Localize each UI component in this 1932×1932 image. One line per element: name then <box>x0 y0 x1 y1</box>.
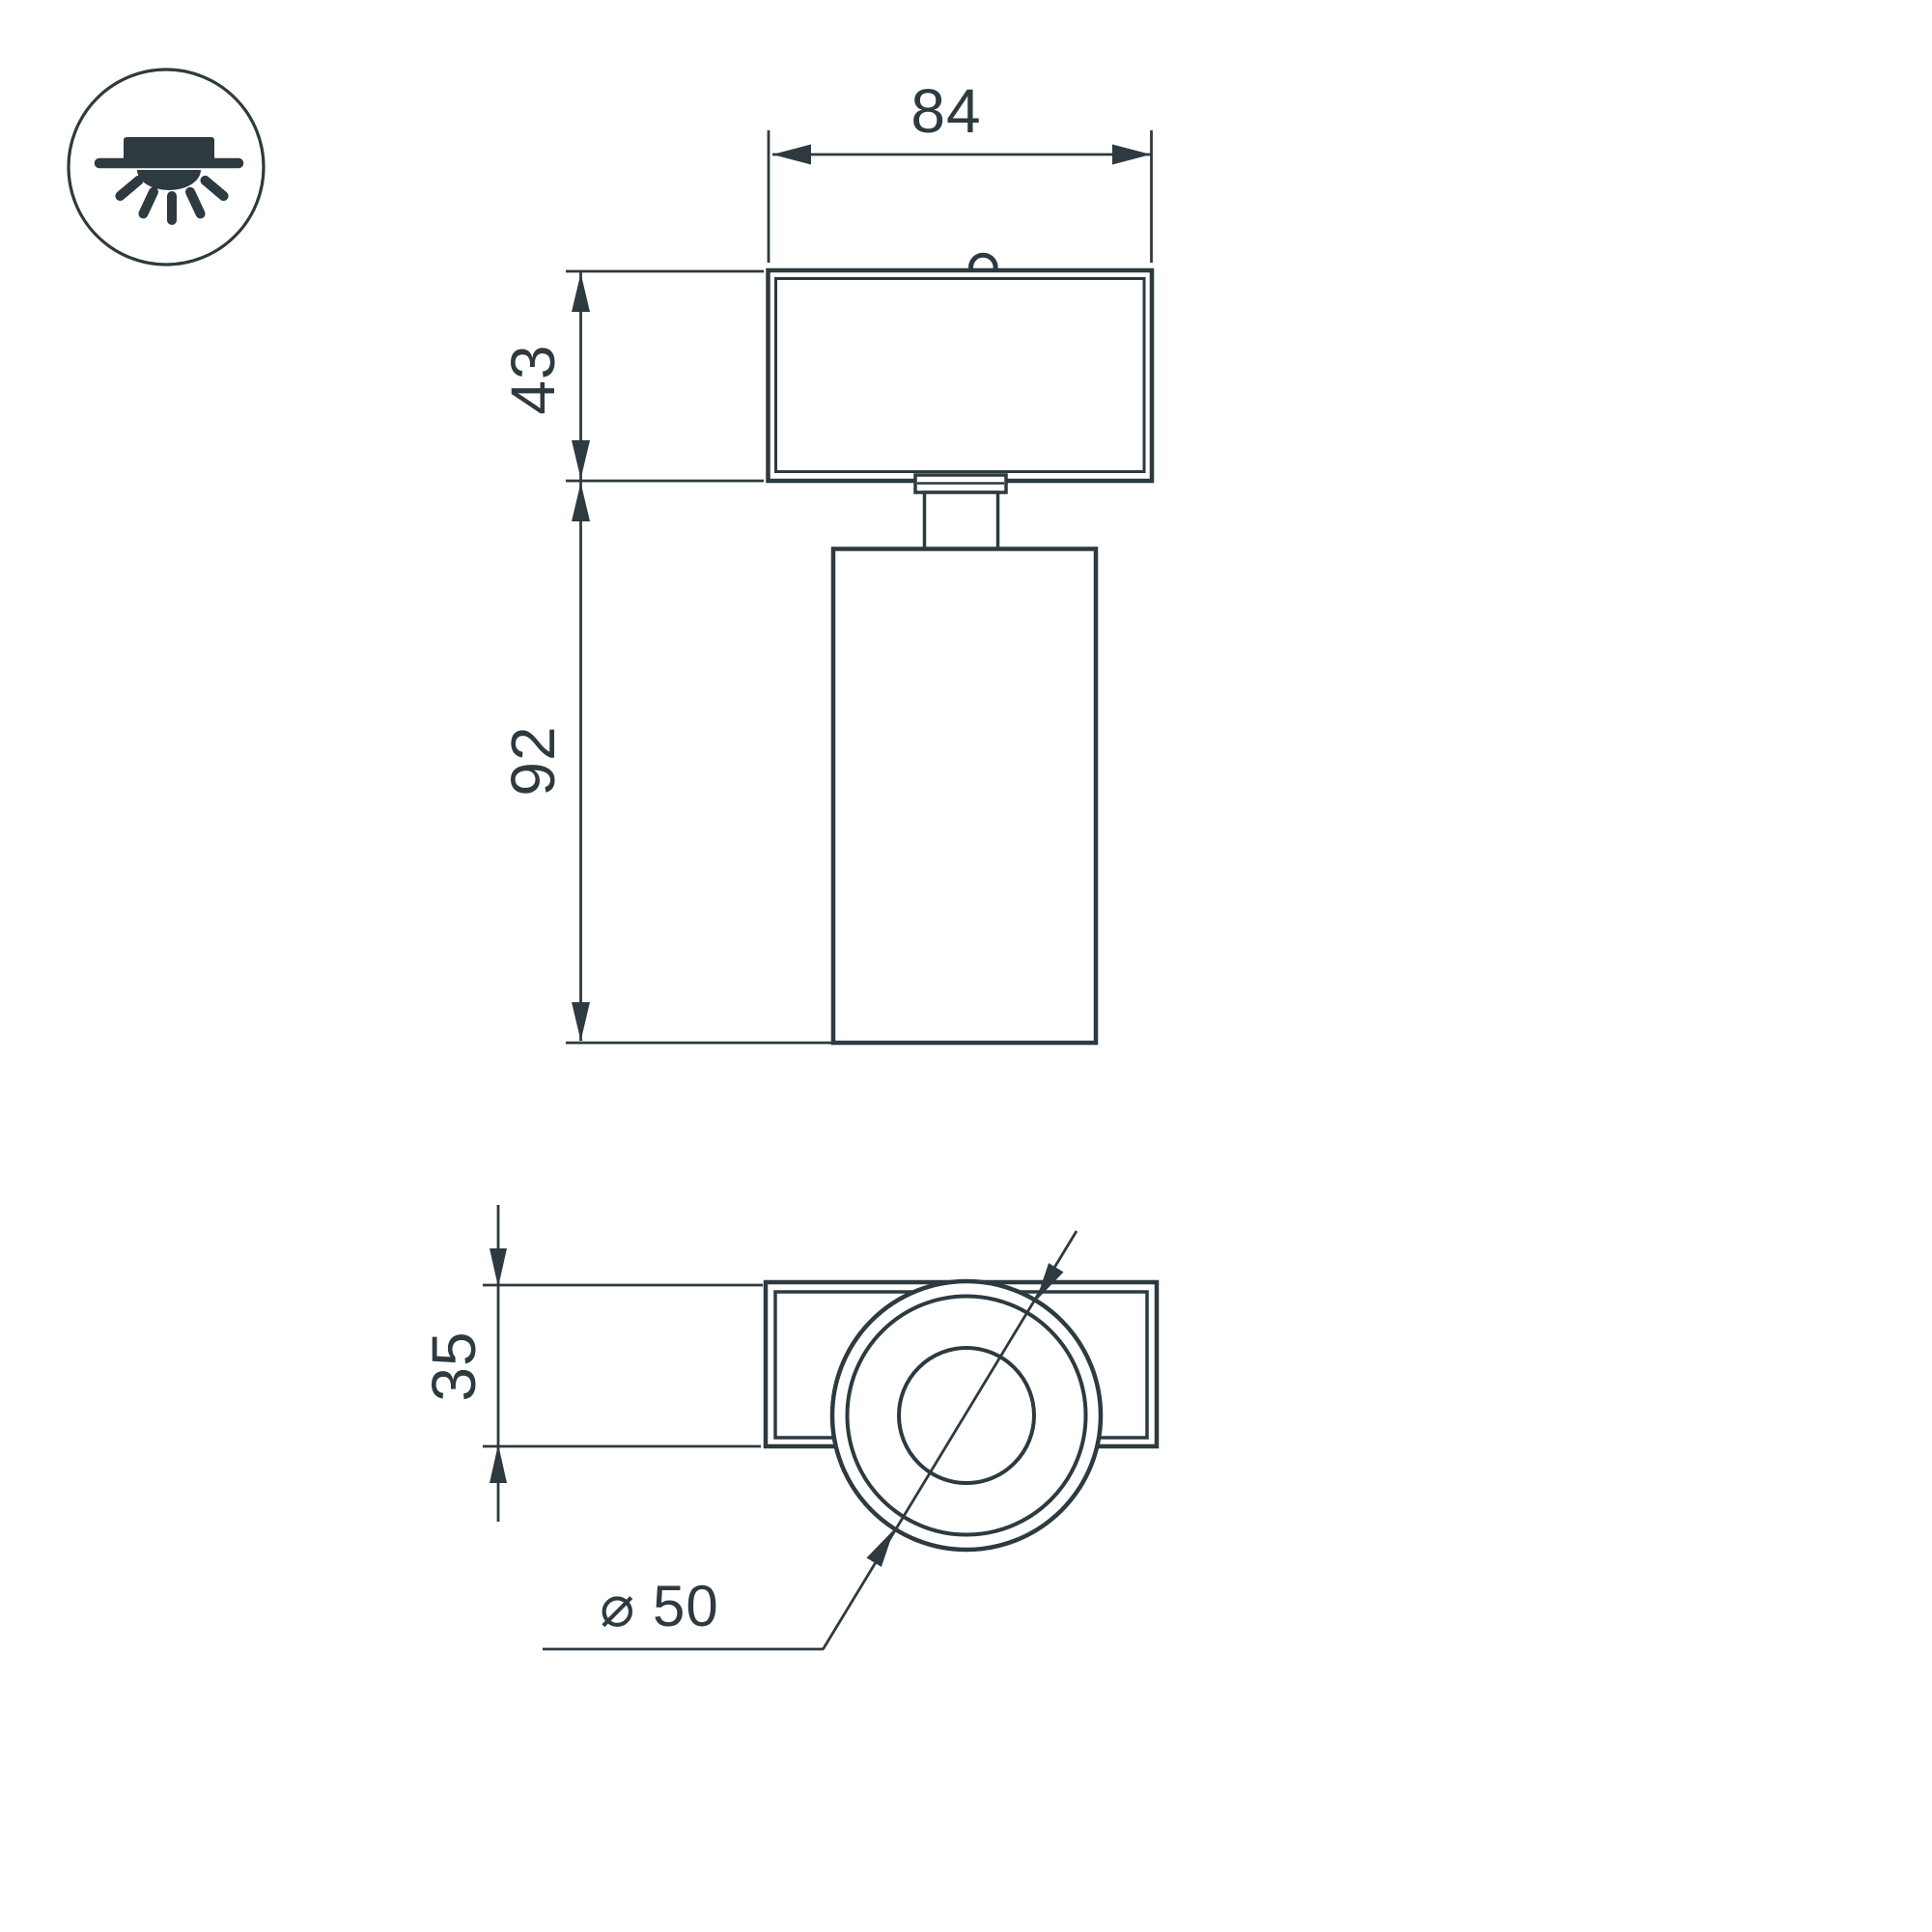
light-ray-icon <box>190 192 201 214</box>
dimension-label-mount-height: 43 <box>502 344 564 414</box>
arrowhead <box>572 440 590 479</box>
arrowhead <box>572 273 590 312</box>
front-view <box>769 255 1153 1043</box>
front-mount-box-inner <box>776 279 1145 472</box>
front-mount-box-outer <box>769 270 1153 481</box>
light-ray-icon <box>143 192 154 214</box>
dimension-drawing: 84 43 92 35 ⌀ 50 <box>0 0 1932 1932</box>
arrowhead <box>490 1444 507 1483</box>
plan-cylinder-outer-circle <box>832 1281 1101 1550</box>
dimension-label-width: 84 <box>910 80 981 142</box>
spot-cylinder-body <box>833 549 1096 1044</box>
drawing-linework <box>0 0 1932 1932</box>
dimension-label-diameter: ⌀ 50 <box>600 1578 719 1636</box>
mount-type-icon <box>69 70 264 265</box>
dimension-label-bracket-depth: 35 <box>423 1330 485 1401</box>
light-ray-icon <box>206 181 224 196</box>
arrowhead <box>867 1529 895 1567</box>
swivel-neck <box>925 492 998 549</box>
dimension-label-body-height: 92 <box>502 725 564 796</box>
light-ray-icon <box>120 181 138 196</box>
icon-lamp-dome <box>137 170 201 190</box>
plan-view <box>766 1281 1157 1550</box>
arrowhead <box>572 483 590 521</box>
arrowhead <box>490 1248 507 1287</box>
arrowhead <box>572 1002 590 1041</box>
arrowhead <box>772 145 811 165</box>
arrowhead <box>1112 145 1151 165</box>
